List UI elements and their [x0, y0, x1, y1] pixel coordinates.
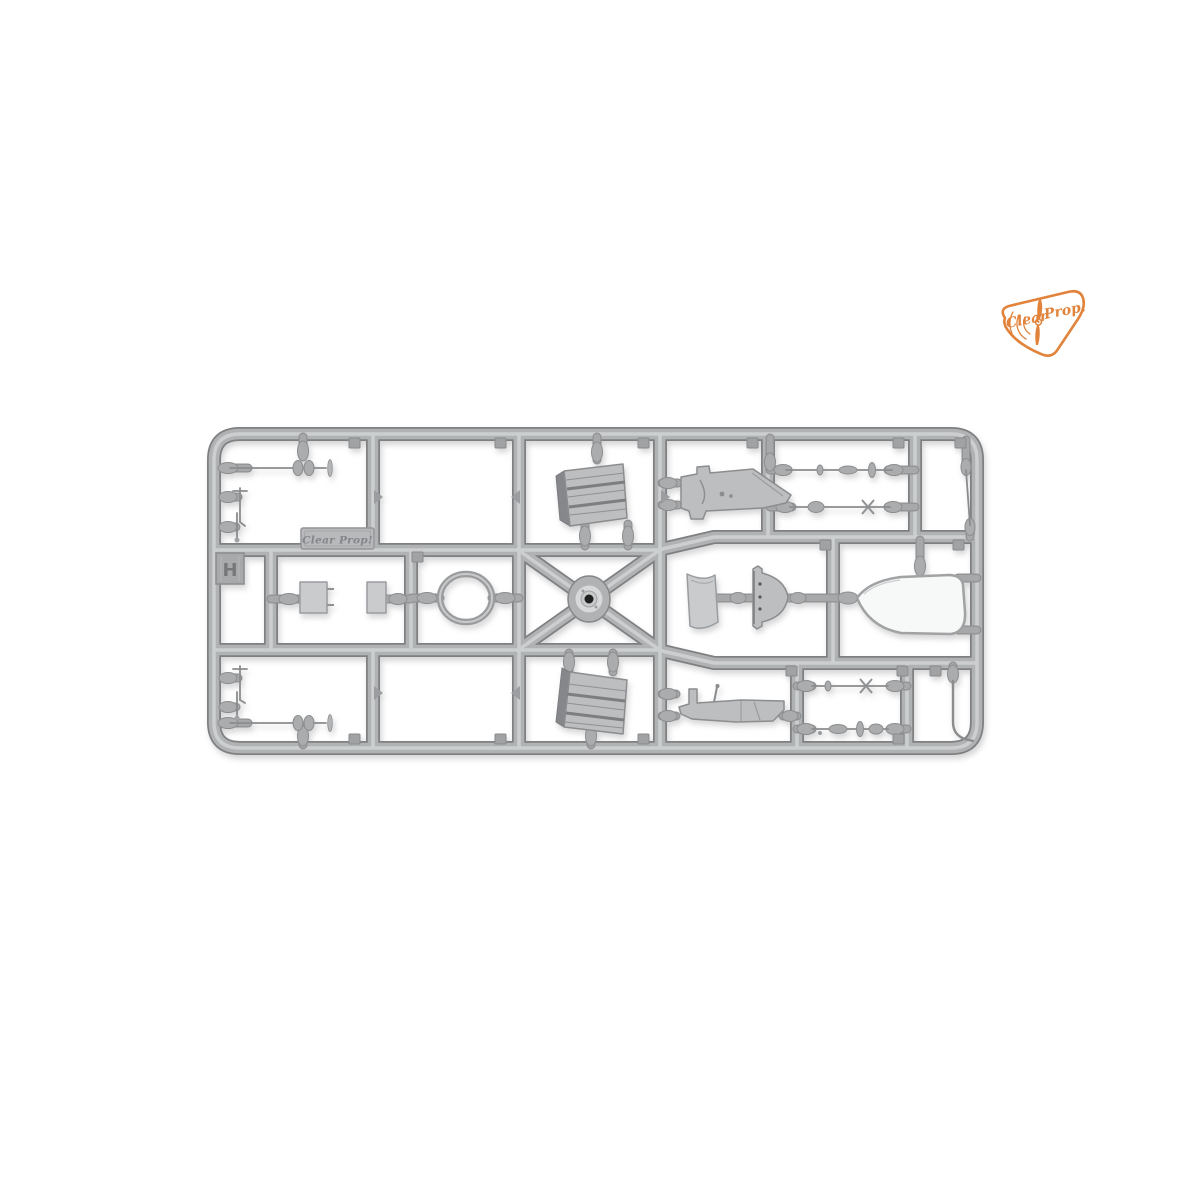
part-mount-plate-2: [367, 582, 386, 613]
part-barrel-rods-bottom-right: [812, 679, 888, 737]
part-cockpit-floor: [679, 684, 784, 722]
part-radiator-top: [556, 464, 627, 526]
part-end-strut-top-right: [966, 470, 970, 525]
nameplate-text: Clear Prop!: [302, 535, 373, 547]
part-antenna-rod-bottom-left: [230, 715, 332, 732]
part-barrel-rods-top-right: [786, 463, 892, 515]
part-cowl-ring: [440, 574, 492, 622]
part-mount-plate-1: [300, 582, 334, 613]
sprue-photo-svg: H Clear Prop!: [0, 0, 1200, 1200]
logo-word-prop: Prop!: [1042, 299, 1088, 323]
product-photo: H Clear Prop!: [0, 0, 1200, 1200]
part-teardrop-fairing: [857, 575, 965, 634]
part-radiator-bottom: [556, 668, 627, 734]
part-curved-panel: [687, 574, 718, 628]
part-headrest-fairing: [753, 566, 788, 629]
sprue-nameplate: Clear Prop!: [301, 528, 374, 549]
sprue: H Clear Prop!: [214, 434, 977, 748]
part-wheel-hub-center: [568, 576, 610, 622]
sprue-letter-tab: H: [216, 553, 244, 584]
part-antenna-rod-top-left: [230, 460, 332, 477]
sprue-letter: H: [222, 560, 237, 581]
clear-prop-logo: Clear Prop!: [1003, 291, 1088, 355]
